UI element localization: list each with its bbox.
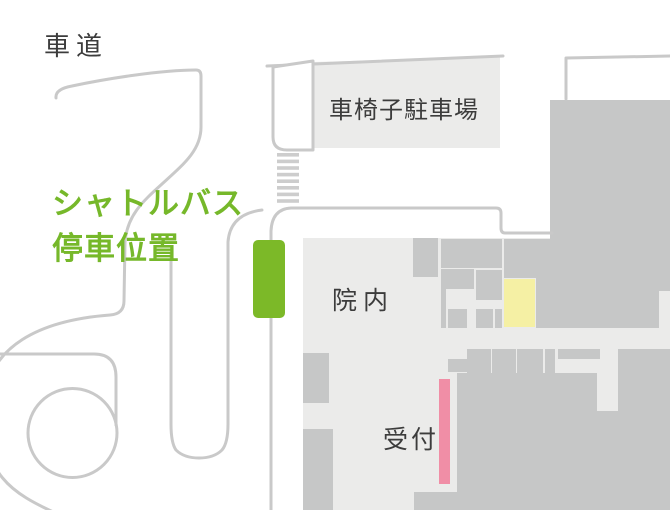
- building-block: [536, 239, 670, 328]
- road-label: 車道: [44, 26, 108, 63]
- room-block: [414, 492, 457, 510]
- building-block: [457, 373, 597, 510]
- room-block: [504, 239, 536, 278]
- reception-label: 受付: [383, 420, 439, 456]
- highlighted-room: [504, 279, 535, 327]
- room-block: [467, 349, 491, 373]
- shuttle-bus-stop-marker: [253, 240, 285, 318]
- room-block: [495, 309, 502, 328]
- room-block: [476, 309, 493, 328]
- room-block: [441, 239, 502, 268]
- crosswalk: [277, 153, 299, 203]
- room-block: [441, 269, 474, 289]
- room-block: [413, 238, 438, 277]
- room-block: [492, 349, 516, 373]
- turnaround-island-circle: [28, 389, 117, 478]
- room-block: [448, 359, 467, 372]
- shuttle-bus-stop-label-line1: シャトルバス: [52, 181, 244, 226]
- room-block: [303, 429, 333, 458]
- room-block: [441, 289, 446, 328]
- building-block: [550, 100, 670, 239]
- room-block: [303, 458, 333, 510]
- room-block: [448, 309, 467, 328]
- room-block: [476, 270, 502, 300]
- hospital-access-map: 車道 車椅子駐車場 シャトルバス 停車位置 院内 受付: [0, 0, 670, 510]
- shuttle-bus-stop-label: シャトルバス 停車位置: [52, 181, 244, 271]
- parking-island: [273, 61, 313, 150]
- wheelchair-parking-label: 車椅子駐車場: [329, 90, 479, 125]
- building-block: [597, 411, 670, 510]
- hospital-interior-label: 院内: [332, 281, 394, 317]
- building-outline-top-right: [566, 56, 670, 99]
- building-notch: [659, 291, 670, 328]
- reception-counter-marker: [439, 379, 450, 484]
- room-block: [303, 353, 329, 403]
- room-block: [558, 349, 600, 359]
- shuttle-bus-stop-label-line2: 停車位置: [52, 226, 244, 271]
